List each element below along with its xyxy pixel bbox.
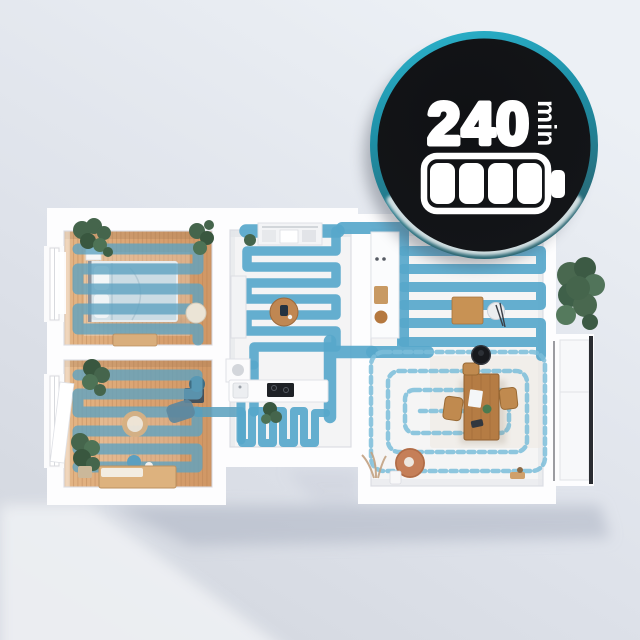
svg-text:min: min [532,100,562,146]
svg-text:240: 240 [428,91,531,157]
